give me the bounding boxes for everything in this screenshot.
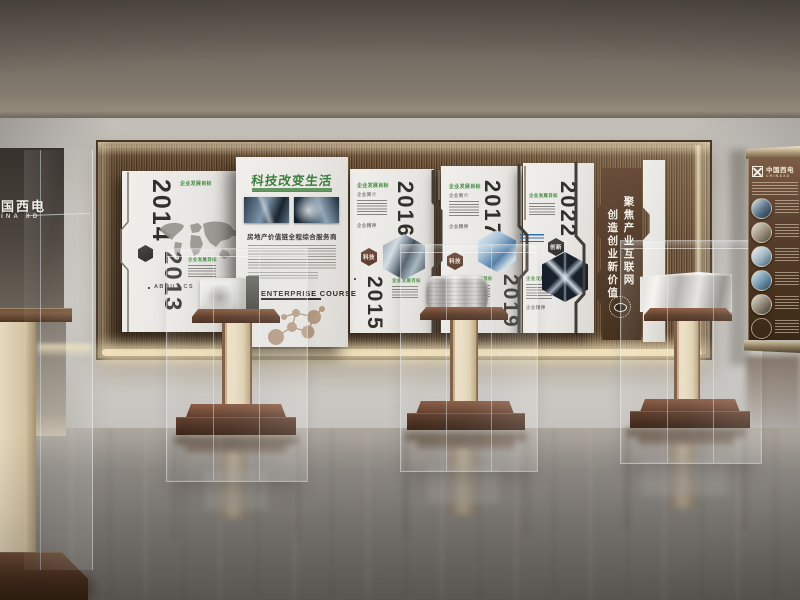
title-underline	[252, 188, 332, 192]
rollup-item-lines	[775, 248, 799, 263]
tech-photo	[294, 197, 339, 223]
rollup-text-lines	[752, 182, 798, 195]
rollup-item-lines	[775, 224, 799, 239]
rollup-item-lines	[775, 296, 799, 311]
main-title: 科技改变生活	[235, 170, 349, 189]
rollup-photo-circle	[751, 294, 772, 315]
glass-case	[400, 244, 538, 472]
rollup-photo-circle	[751, 198, 772, 219]
rollup-item-lines	[775, 272, 799, 287]
rollup-photo-circle	[751, 222, 772, 243]
rollup-item-lines	[775, 320, 799, 335]
tech-photo	[244, 197, 289, 223]
glass-case	[166, 248, 308, 482]
rollup-banner: 中国西电 CHINAXD	[748, 158, 800, 340]
xd-logo-icon	[752, 166, 763, 177]
exhibition-hall-scene: 2014 企业发展目标 2013 企业发展目标 ABOUT CS	[0, 0, 800, 600]
rollup-reflection	[746, 356, 800, 434]
rollup-photo-circle	[751, 270, 772, 291]
glass-case	[620, 240, 762, 464]
rollup-photo-circle	[751, 318, 772, 339]
center-heading: 房地产价值链全程综合服务商	[236, 231, 348, 241]
left-showcase-glass	[24, 150, 93, 570]
rollup-brand-en: CHINAXD	[766, 174, 794, 178]
rollup-item-lines	[775, 200, 799, 215]
rollup-brand: 中国西电	[766, 164, 794, 174]
rollup-photo-circle	[751, 246, 772, 267]
